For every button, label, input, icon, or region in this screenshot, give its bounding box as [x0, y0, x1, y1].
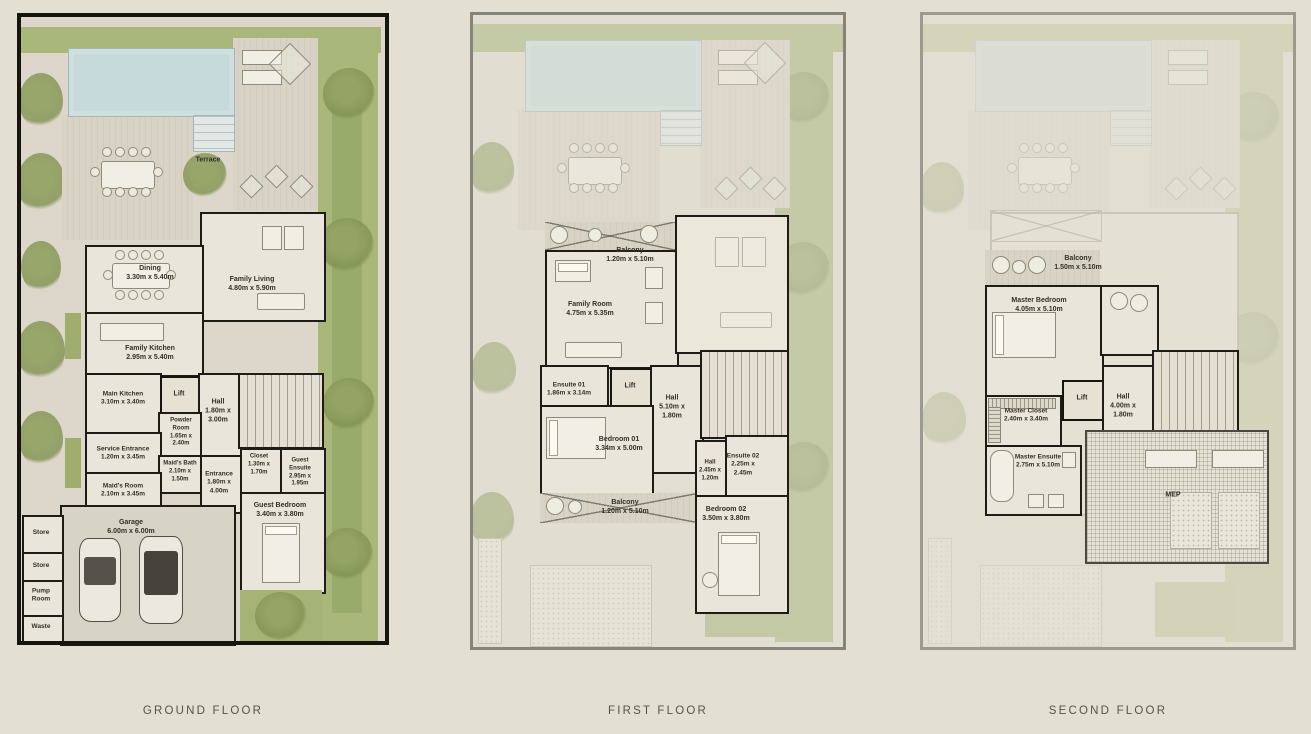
- room-master-sitting: [1100, 285, 1159, 356]
- sink: [1048, 494, 1064, 508]
- room-label-lift-g: Lift: [174, 389, 185, 398]
- room-label-family-living: Family Living4.80m x 5.90m: [219, 275, 285, 293]
- armchair: [645, 302, 663, 324]
- sofa: [565, 342, 622, 358]
- sink: [1028, 494, 1044, 508]
- bed-ghost: [742, 237, 766, 267]
- round-table: [568, 500, 582, 514]
- tree: [19, 411, 63, 467]
- room-label-store-1: Store: [33, 529, 50, 537]
- room-label-hall-g: Hall1.80m x 3.00m: [199, 397, 237, 424]
- room-label-terrace: Terrace: [196, 155, 221, 164]
- room-label-lift-s: Lift: [1077, 393, 1088, 402]
- caption-ground-floor: GROUND FLOOR: [143, 705, 263, 717]
- swimming-pool: [68, 48, 235, 117]
- room-label-maids-bath: Maid's Bath2.10m x 1.50m: [162, 460, 198, 483]
- room-label-guest-ensuite: Guest Ensuite2.95m x 1.95m: [281, 457, 319, 488]
- room-label-lift-f: Lift: [625, 381, 636, 390]
- car-sedan: [139, 536, 183, 624]
- pool-steps: [193, 115, 235, 152]
- tree: [21, 241, 61, 293]
- round-table: [588, 228, 602, 242]
- room-label-master-bedroom: Master Bedroom4.05m x 5.10m: [999, 296, 1079, 314]
- bed: [262, 523, 300, 583]
- room-label-balcony-s: Balcony1.50m x 5.10m: [1047, 254, 1109, 272]
- room-label-entrance: Entrance1.80m x 4.00m: [200, 470, 238, 495]
- staircase: [238, 373, 324, 449]
- tree: [320, 218, 374, 272]
- caption-first-floor: FIRST FLOOR: [608, 705, 708, 717]
- room-label-mep: MEP: [1165, 490, 1180, 499]
- room-label-bedroom-02: Bedroom 023.50m x 3.80m: [690, 505, 762, 523]
- staircase: [1152, 350, 1239, 439]
- chairs: [103, 148, 111, 156]
- room-label-ensuite-01: Ensuite 011.86m x 3.14m: [546, 382, 592, 399]
- tree: [323, 68, 375, 120]
- roof-light: [1218, 492, 1260, 549]
- first-floor-plan: Balcony1.20m x 5.10m Family Room4.75m x …: [470, 12, 846, 650]
- room-label-bedroom-01: Bedroom 013.34m x 5.00m: [584, 435, 654, 453]
- room-label-closet: Closet1.30m x 1.70m: [241, 453, 277, 476]
- staircase: [700, 350, 789, 439]
- bed: [718, 532, 760, 596]
- roof-light: [1170, 492, 1212, 549]
- room-label-master-closet: Master Closet2.40m x 3.40m: [996, 408, 1056, 425]
- armchair: [645, 267, 663, 289]
- tree: [17, 321, 65, 381]
- bed: [992, 312, 1056, 358]
- bed-ghost: [715, 237, 739, 267]
- room-label-family-kitchen: Family Kitchen2.95m x 5.40m: [115, 344, 185, 362]
- room-label-service-entrance: Service Entrance1.20m x 3.45m: [91, 446, 155, 463]
- round-chair: [546, 497, 564, 515]
- armchair: [262, 226, 282, 250]
- sun-lounger: [242, 70, 282, 85]
- room-label-ensuite-02: Ensuite 022.25m x 2.45m: [721, 452, 765, 477]
- round-chair: [550, 226, 568, 244]
- room-label-maids-room: Maid's Room2.10m x 3.45m: [91, 483, 155, 500]
- round-chair: [1130, 294, 1148, 312]
- tree: [255, 592, 307, 640]
- room-label-balcony-bottom: Balcony1.20m x 5.10m: [590, 498, 660, 516]
- round-chair: [1110, 292, 1128, 310]
- room-label-hall-f: Hall5.10m x 1.80m: [652, 393, 692, 420]
- room-label-powder: Powder Room1.65m x 2.40m: [163, 417, 199, 448]
- room-label-pump: Pump Room: [25, 588, 57, 605]
- ac-unit: [1212, 450, 1264, 468]
- round-table: [1012, 260, 1026, 274]
- tree: [19, 73, 63, 129]
- caption-second-floor: SECOND FLOOR: [1049, 705, 1167, 717]
- round-chair: [640, 225, 658, 243]
- daybed: [555, 260, 591, 282]
- tree: [17, 153, 65, 213]
- kitchen-island: [100, 323, 164, 341]
- round-chair: [992, 256, 1010, 274]
- planter: [65, 438, 81, 488]
- room-label-balcony-top: Balcony1.20m x 5.10m: [599, 246, 661, 264]
- sofa-ghost: [720, 312, 772, 328]
- room-label-main-kitchen: Main Kitchen3.10m x 3.40m: [92, 391, 154, 408]
- round-chair: [1028, 256, 1046, 274]
- armchair: [284, 226, 304, 250]
- room-label-garage: Garage6.00m x 6.00m: [99, 518, 163, 536]
- room-void: [675, 215, 789, 354]
- dining-table: [101, 161, 155, 189]
- sofa: [257, 293, 305, 310]
- floor-plans-sheet: Terrace Dining3.30m x 5.40m Family Livin…: [0, 0, 1311, 734]
- room-label-family-room: Family Room4.75m x 5.35m: [557, 300, 623, 318]
- room-label-guest-bedroom: Guest Bedroom3.40m x 3.80m: [242, 501, 318, 519]
- room-label-store-2: Store: [33, 562, 50, 570]
- room-label-hall-s: Hall4.00m x 1.80m: [1103, 392, 1143, 419]
- tree: [321, 528, 373, 580]
- car-convertible: [79, 538, 121, 622]
- second-floor-plan: Balcony1.50m x 5.10m Master Bedroom4.05m…: [920, 12, 1296, 650]
- chairs: [116, 251, 124, 259]
- round-chair: [702, 572, 718, 588]
- ground-floor-plan: Terrace Dining3.30m x 5.40m Family Livin…: [17, 13, 389, 645]
- ac-unit: [1145, 450, 1197, 468]
- tree: [323, 378, 375, 430]
- planter: [65, 313, 81, 359]
- room-label-dining: Dining3.30m x 5.40m: [118, 264, 182, 282]
- room-label-waste: Waste: [32, 623, 51, 631]
- room-label-master-ensuite: Master Ensuite2.75m x 5.10m: [1003, 454, 1073, 471]
